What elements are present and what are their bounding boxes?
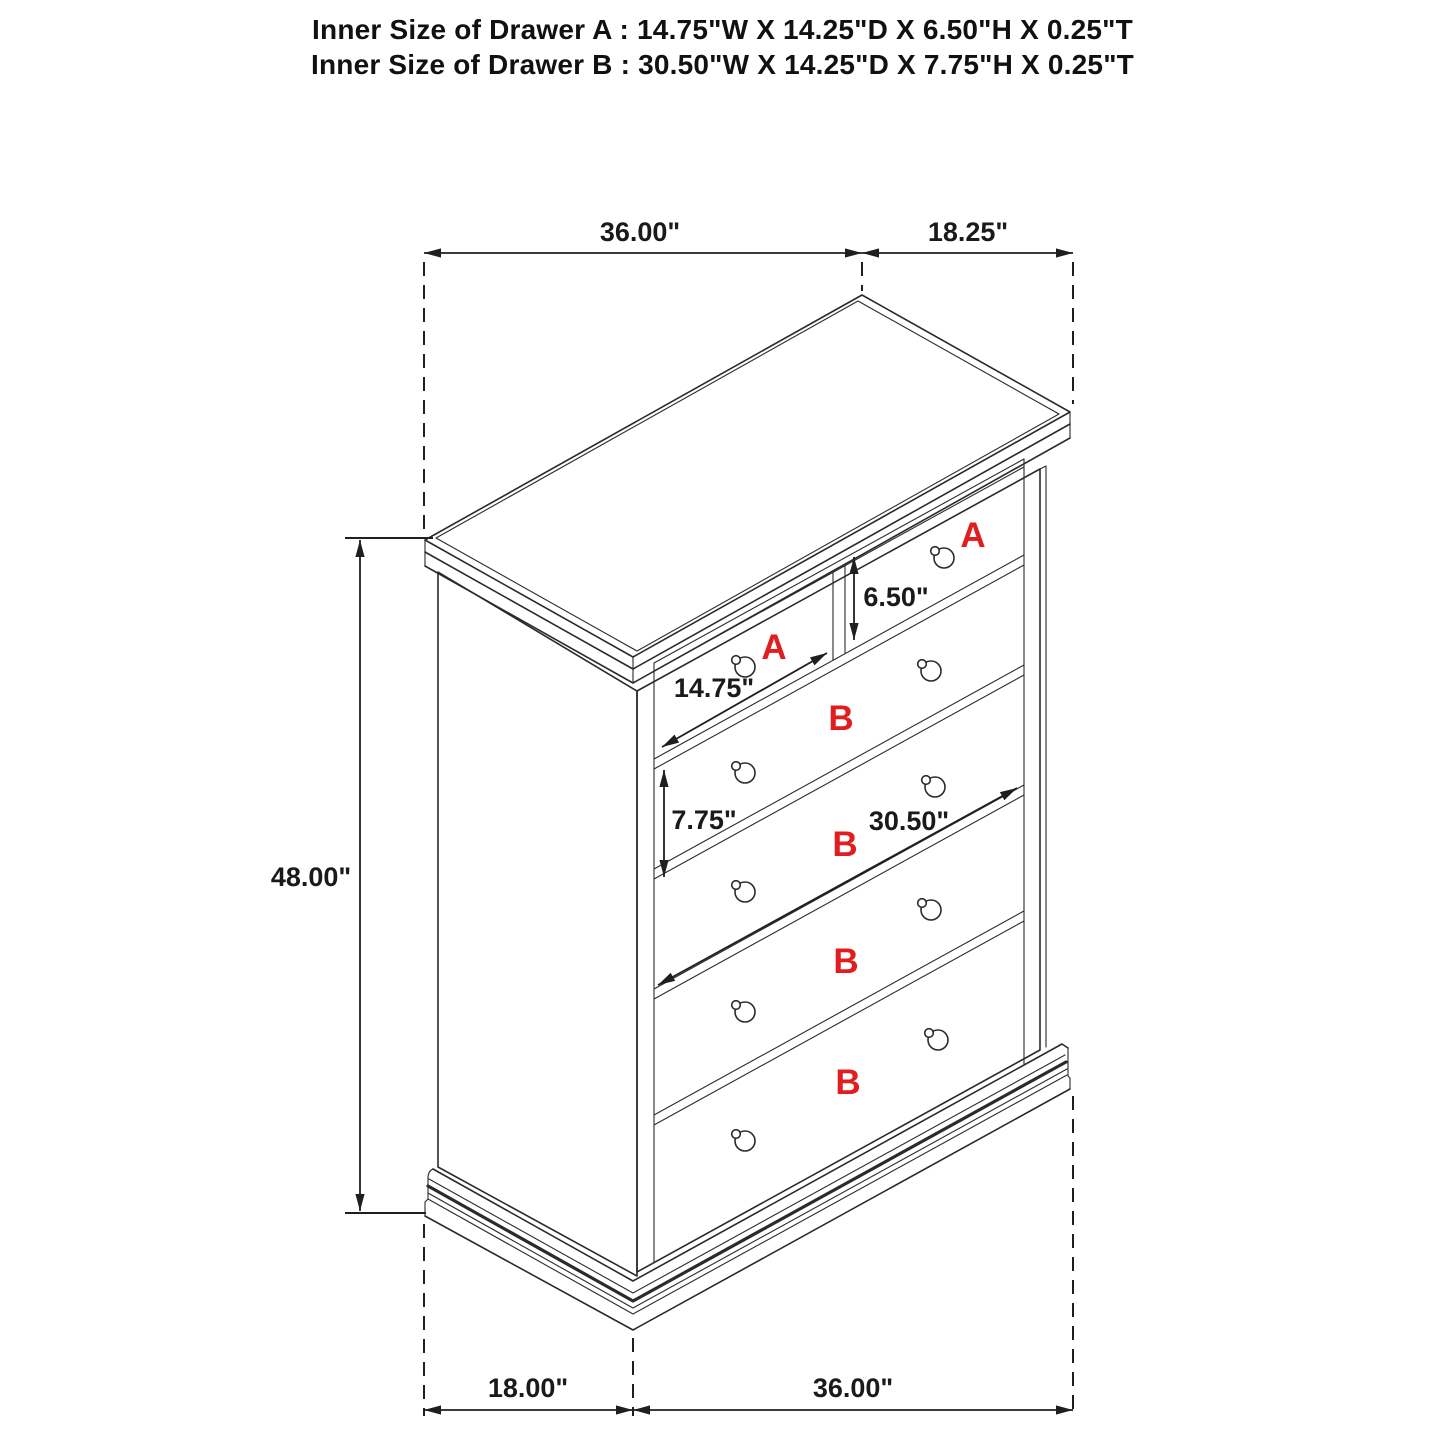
knob-icon: [918, 660, 941, 681]
overall-height-value: 48.00": [271, 862, 351, 892]
knob-icon: [732, 881, 755, 902]
knob-icon: [732, 1001, 755, 1022]
height-dimension: 48.00": [271, 538, 433, 1213]
knob-icon: [918, 899, 941, 920]
chest-top: [425, 295, 1070, 683]
top-width-value: 36.00": [600, 217, 680, 247]
drawer-label-b1: B: [828, 699, 853, 738]
drawer-a-height-value: 6.50": [863, 582, 928, 612]
knob-icon: [925, 1029, 948, 1050]
side-panel: [438, 572, 637, 1276]
drawer-label-a-right: A: [960, 516, 985, 555]
bottom-depth-value: 18.00": [488, 1373, 568, 1403]
top-depth-value: 18.25": [928, 217, 1008, 247]
drawer-label-a-left: A: [761, 628, 786, 667]
drawer-label-b2: B: [832, 825, 857, 864]
drawer-a-width-value: 14.75": [674, 673, 754, 703]
bottom-width-value: 36.00": [813, 1373, 893, 1403]
knob-icon: [732, 762, 755, 783]
chest-isometric-drawing: A A B B B B 36.00" 18.25" 48.00" 6.50": [0, 0, 1445, 1445]
bottom-depth-dimension: 18.00": [424, 1224, 633, 1416]
furniture-dimension-diagram: Inner Size of Drawer A : 14.75"W X 14.25…: [0, 0, 1445, 1445]
knob-icon: [732, 1130, 755, 1151]
drawer-label-b4: B: [835, 1063, 860, 1102]
drawer-b-height-dimension: 7.75": [664, 770, 737, 877]
drawer-label-b3: B: [833, 942, 858, 981]
knob-icon: [931, 547, 954, 568]
bottom-width-dimension: 36.00": [633, 1096, 1073, 1416]
drawer-b-height-value: 7.75": [671, 805, 736, 835]
knob-icon: [922, 776, 945, 797]
drawer-b-width-value: 30.50": [869, 806, 949, 836]
